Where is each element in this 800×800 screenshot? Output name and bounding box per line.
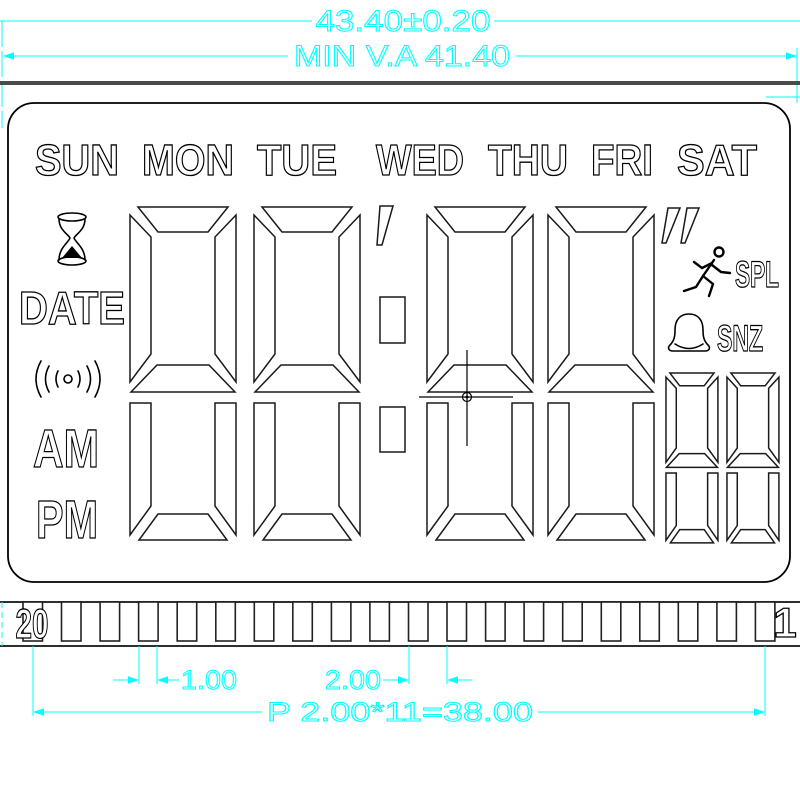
day-mon: MON bbox=[142, 136, 234, 185]
am-label: AM bbox=[33, 419, 99, 479]
pin bbox=[717, 602, 737, 641]
day-of-week-row: SUN MON TUE WED THU FRI SAT bbox=[35, 136, 757, 185]
pin-width-text: 1.00 bbox=[181, 665, 237, 695]
pin bbox=[486, 602, 506, 641]
pin bbox=[216, 602, 236, 641]
pin bbox=[62, 602, 82, 641]
day-sun: SUN bbox=[35, 136, 119, 185]
dimension-overall-width: 43.40±0.20 bbox=[0, 5, 800, 38]
pin bbox=[100, 602, 120, 641]
pin-array bbox=[23, 602, 775, 641]
overall-width-text: 43.40±0.20 bbox=[316, 5, 491, 38]
pin bbox=[640, 602, 660, 641]
day-sat: SAT bbox=[677, 136, 757, 185]
pm-label: PM bbox=[36, 490, 98, 550]
pin bbox=[331, 602, 351, 641]
day-wed: WED bbox=[376, 136, 464, 185]
date-label: DATE bbox=[19, 282, 125, 334]
pin bbox=[601, 602, 621, 641]
cad-drawing: 43.40±0.20 MIN V.A 41.40 SUN MON TUE WED… bbox=[0, 0, 800, 800]
pin bbox=[447, 602, 467, 641]
day-tue: TUE bbox=[257, 136, 337, 185]
pin bbox=[409, 602, 429, 641]
dimension-pin-pitch: 2.00 bbox=[325, 646, 472, 695]
pin bbox=[524, 602, 544, 641]
pin bbox=[293, 602, 313, 641]
pin bbox=[177, 602, 197, 641]
dimension-pin-width: 1.00 bbox=[113, 646, 237, 695]
pin bbox=[755, 602, 775, 641]
pin bbox=[370, 602, 390, 641]
pitch-total-text: P 2.00*11=38.00 bbox=[267, 697, 533, 727]
pin bbox=[563, 602, 583, 641]
lcd-drawing-canvas: 43.40±0.20 MIN V.A 41.40 SUN MON TUE WED… bbox=[0, 0, 800, 800]
pin-label-1: 1 bbox=[773, 599, 796, 646]
snz-label: SNZ bbox=[717, 318, 763, 359]
pin-pitch-text: 2.00 bbox=[325, 665, 381, 695]
pin bbox=[678, 602, 698, 641]
viewing-area-text: MIN V.A 41.40 bbox=[294, 40, 510, 73]
day-thu: THU bbox=[488, 136, 568, 185]
pin bbox=[254, 602, 273, 641]
day-fri: FRI bbox=[591, 136, 653, 185]
spl-label: SPL bbox=[735, 254, 779, 295]
pin-label-20: 20 bbox=[16, 600, 49, 647]
pin bbox=[139, 602, 159, 641]
